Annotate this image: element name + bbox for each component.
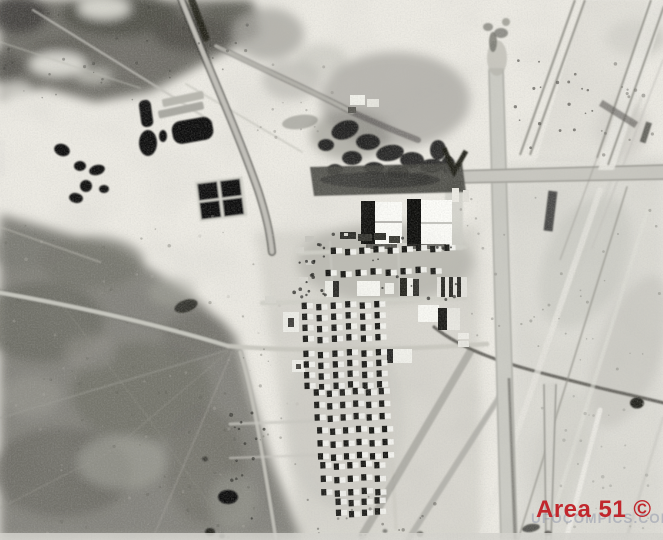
photo-canvas xyxy=(0,0,663,540)
area51-caption: Area 51 © xyxy=(536,498,652,522)
area51-satellite-photo: UFOCOMPICS.COM Area 51 © xyxy=(0,0,663,540)
film-grain xyxy=(0,0,663,540)
